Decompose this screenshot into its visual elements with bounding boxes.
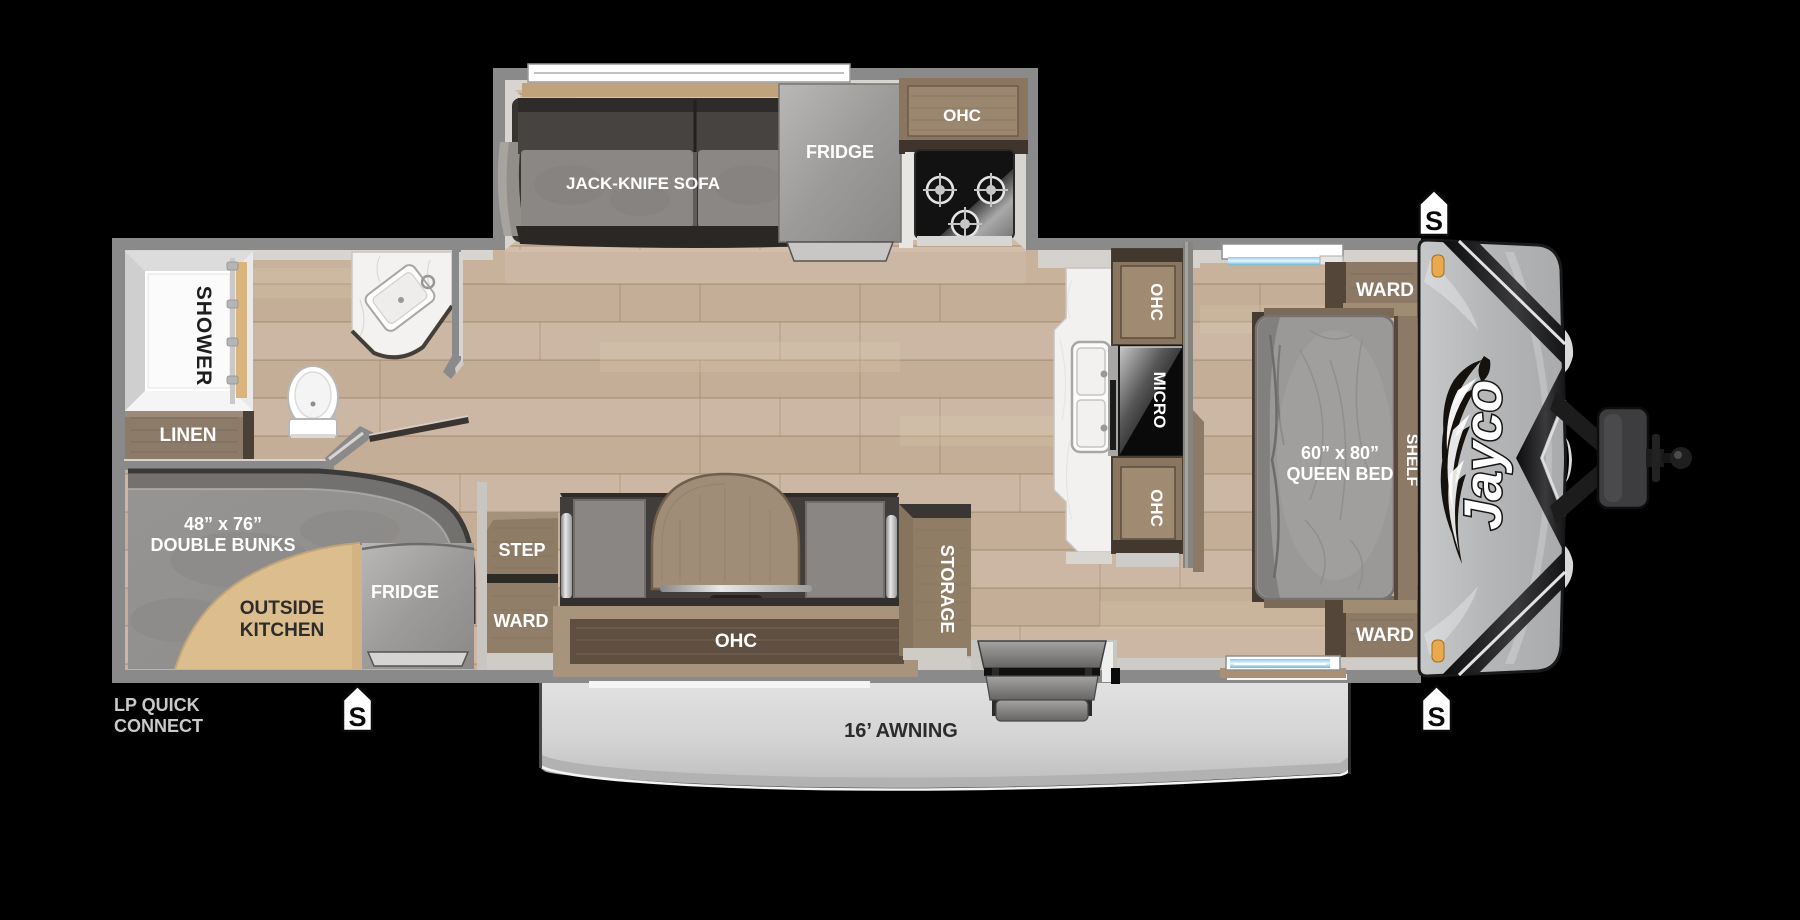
svg-text:60” x 80”: 60” x 80”	[1301, 443, 1379, 463]
svg-text:MICRO: MICRO	[1150, 372, 1169, 429]
svg-text:OHC: OHC	[1147, 489, 1166, 527]
svg-text:OHC: OHC	[1147, 283, 1166, 321]
svg-text:OHC: OHC	[943, 106, 981, 125]
svg-text:Jayco: Jayco	[1454, 380, 1513, 530]
svg-text:OUTSIDE: OUTSIDE	[240, 598, 324, 619]
svg-text:STEP: STEP	[498, 540, 545, 560]
svg-text:WARD: WARD	[1356, 280, 1414, 301]
svg-text:FRIDGE: FRIDGE	[371, 582, 439, 602]
svg-text:KITCHEN: KITCHEN	[240, 620, 324, 641]
svg-text:FRIDGE: FRIDGE	[806, 142, 874, 162]
svg-text:JACK-KNIFE SOFA: JACK-KNIFE SOFA	[566, 174, 720, 193]
svg-text:S: S	[1427, 702, 1445, 732]
svg-text:S: S	[348, 702, 366, 732]
svg-text:48” x 76”: 48” x 76”	[184, 514, 262, 534]
svg-text:16’ AWNING: 16’ AWNING	[844, 720, 958, 742]
svg-text:QUEEN BED: QUEEN BED	[1286, 464, 1393, 484]
svg-text:WARD: WARD	[494, 611, 549, 631]
svg-text:S: S	[1425, 206, 1443, 236]
svg-text:WARD: WARD	[1356, 625, 1414, 646]
svg-text:SHELF: SHELF	[1403, 434, 1420, 487]
svg-text:SHOWER: SHOWER	[192, 286, 215, 387]
svg-text:OHC: OHC	[715, 631, 758, 652]
svg-text:LINEN: LINEN	[160, 425, 217, 446]
svg-text:DOUBLE BUNKS: DOUBLE BUNKS	[150, 535, 295, 555]
svg-text:LP QUICK: LP QUICK	[114, 695, 200, 715]
svg-text:CONNECT: CONNECT	[114, 716, 203, 736]
svg-text:STORAGE: STORAGE	[937, 545, 957, 634]
